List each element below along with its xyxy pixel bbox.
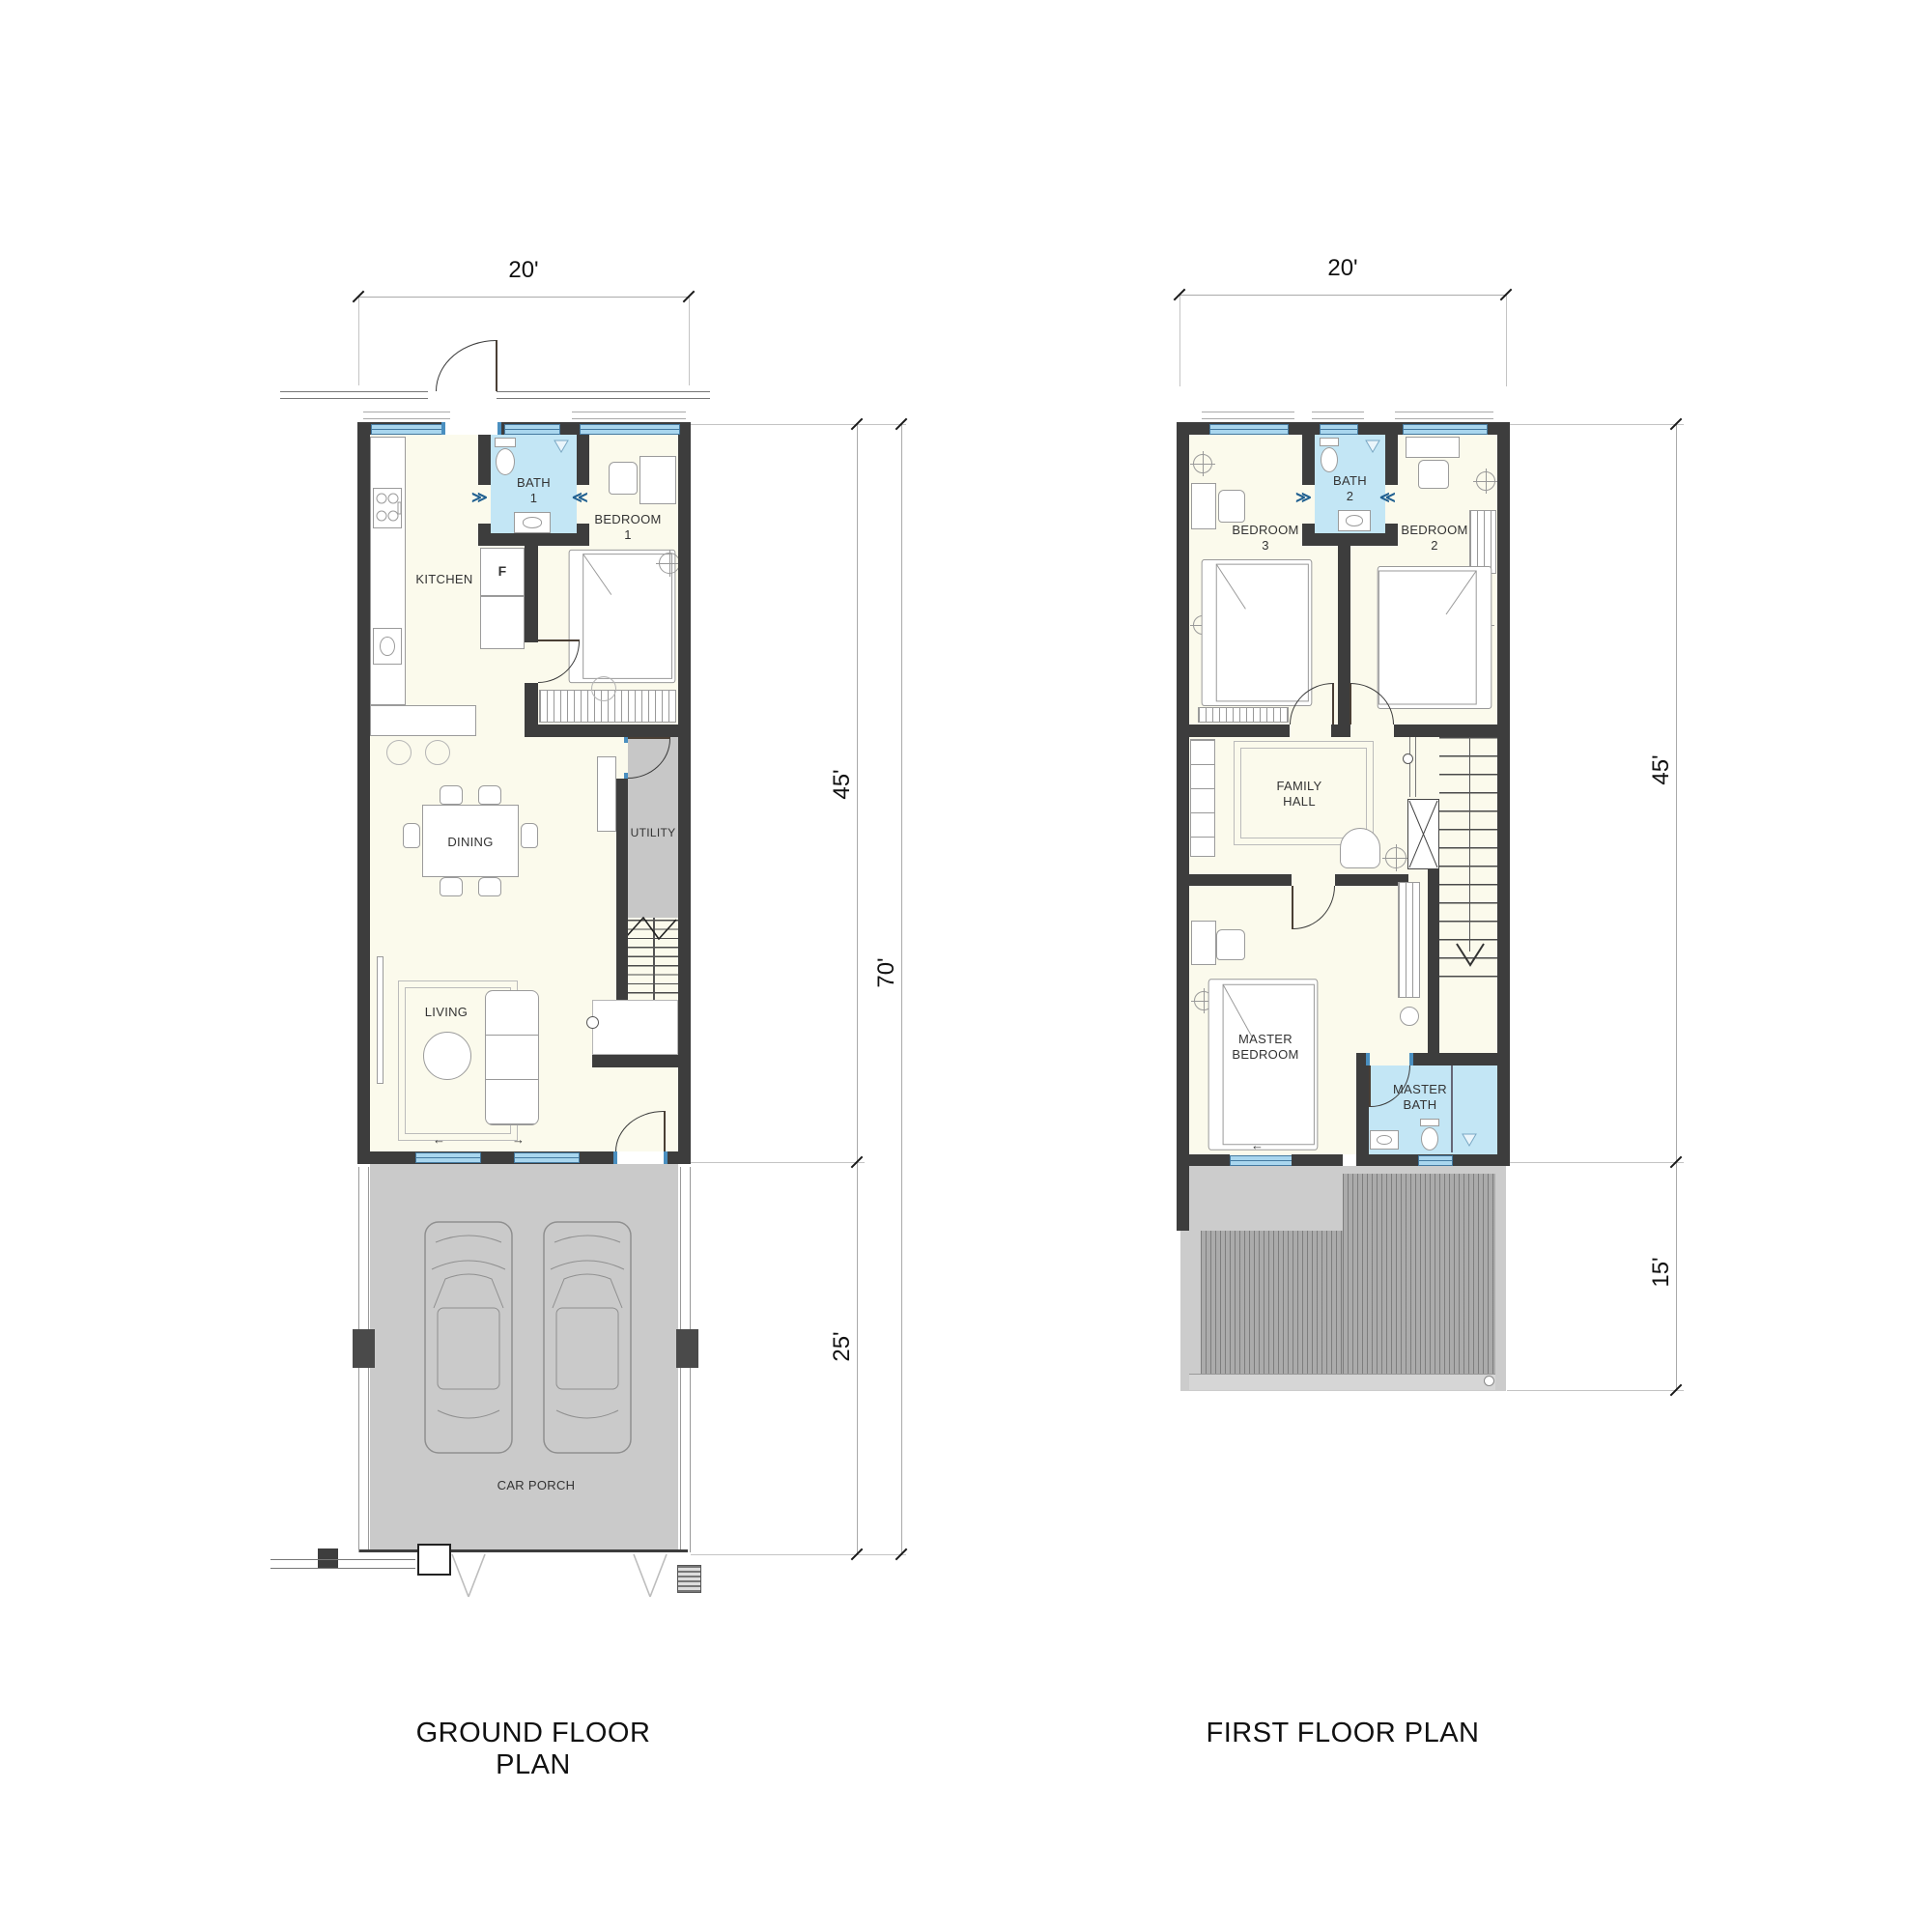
wall-segment (1497, 422, 1510, 1164)
ceiling-fan-icon (1385, 847, 1406, 868)
window (504, 424, 560, 435)
desk (639, 456, 676, 504)
drain-symbol (1484, 1376, 1494, 1386)
drain-grate (677, 1565, 701, 1593)
wall-segment (525, 683, 538, 724)
door-leaf (664, 1111, 666, 1151)
dimension-label-width: 20' (490, 257, 557, 284)
fridge-label: F (480, 563, 525, 581)
sliding-window (514, 1152, 580, 1163)
gate-swing (450, 1552, 487, 1599)
dimension-label-house: 45' (1648, 741, 1675, 799)
car (541, 1219, 634, 1456)
window-sill (1395, 412, 1493, 419)
bed (1377, 565, 1492, 710)
window (1418, 1155, 1453, 1166)
column-symbol (1403, 753, 1413, 764)
door-gap (1369, 1053, 1410, 1065)
wall-segment (1428, 869, 1439, 1053)
master-bath-sink (1370, 1130, 1399, 1150)
bed (1201, 558, 1313, 707)
extension-line (691, 1162, 865, 1163)
room-label-master-bedroom: MASTER BEDROOM (1219, 1032, 1312, 1064)
room-label-car-porch: CAR PORCH (469, 1478, 604, 1493)
door-jamb (1409, 1053, 1413, 1065)
door-jamb (624, 773, 628, 779)
dimension-label-total: 70' (873, 944, 900, 1002)
toilet-bowl (1421, 1127, 1438, 1151)
door-jamb (664, 1151, 668, 1164)
desk-chair (1216, 929, 1245, 960)
wall-segment (1177, 874, 1292, 886)
gate-swing (632, 1552, 668, 1599)
shower-icon (553, 439, 570, 454)
toilet-tank (1320, 438, 1339, 446)
wall-segment (1302, 533, 1398, 546)
bed (1207, 978, 1319, 1151)
door-jamb (497, 422, 501, 435)
room-label-dining: DINING (422, 835, 519, 850)
slide-arrow-icon: ← (1251, 1138, 1264, 1152)
column (676, 1329, 698, 1368)
roof-deck (1201, 1231, 1343, 1374)
dimension-line (901, 424, 902, 1555)
window (371, 424, 444, 435)
window-sill (363, 412, 450, 419)
dimension-line (1179, 295, 1507, 296)
gate-post (417, 1544, 451, 1576)
extension-line (689, 297, 690, 385)
shower-icon (1461, 1132, 1478, 1148)
roof-deck (1343, 1174, 1495, 1374)
dimension-label-width: 20' (1309, 255, 1377, 282)
kitchen-island (370, 705, 476, 736)
fence-line (497, 391, 710, 399)
dimension-line (857, 424, 858, 1555)
dimension-line (1676, 424, 1677, 1391)
desk (1191, 921, 1216, 965)
window-sill (1202, 412, 1294, 419)
desk-chair (609, 462, 638, 495)
dining-chair (521, 823, 538, 848)
extension-line (1510, 1162, 1684, 1163)
stair-break-line (626, 914, 680, 943)
dining-chair (440, 877, 463, 896)
door-jamb (613, 1151, 617, 1164)
wall-segment (678, 422, 691, 1164)
stool (386, 740, 412, 765)
kitchen-counter (370, 437, 406, 705)
stool (591, 676, 616, 701)
wall-segment (1177, 422, 1189, 1231)
kitchen-sink (373, 628, 402, 665)
wall-segment (616, 779, 628, 918)
stove-icon (373, 488, 402, 528)
bath2-sink (1338, 510, 1371, 531)
wall-segment (592, 1055, 691, 1067)
sofa (485, 990, 539, 1125)
fence-line (280, 391, 428, 399)
wall-segment (1356, 1065, 1369, 1154)
coffee-table (423, 1032, 471, 1080)
extension-line (1506, 295, 1507, 386)
door-jamb (1366, 1053, 1370, 1065)
toilet-bowl (496, 448, 515, 475)
dimension-line (358, 297, 690, 298)
room-label-bath1: BATH 1 (478, 475, 589, 507)
shower-icon (1364, 439, 1381, 454)
wall-segment (525, 724, 691, 737)
extension-line (358, 297, 359, 385)
window (1320, 424, 1358, 435)
sliding-window (415, 1152, 481, 1163)
window (580, 424, 680, 435)
fence-line (270, 1559, 415, 1569)
kitchen-cabinet (480, 596, 525, 649)
armchair (1340, 828, 1380, 868)
room-label-master-bath: MASTER BATH (1377, 1082, 1463, 1114)
room-label-bedroom2: BEDROOM 2 (1386, 523, 1483, 554)
door-leaf (496, 340, 497, 391)
toilet-tank (1420, 1119, 1439, 1126)
understair-cabinet (592, 1000, 678, 1055)
stool (425, 740, 450, 765)
storage-box (597, 756, 616, 832)
wall-segment (1177, 724, 1290, 737)
wall-segment (1331, 724, 1350, 737)
tv-console (377, 956, 384, 1084)
window (1403, 424, 1488, 435)
desk (1406, 437, 1460, 458)
sliding-window (1230, 1155, 1293, 1166)
extension-line (1507, 1390, 1684, 1391)
floor-plan-sheet: 20' KITCHEN ≫ ≪ BATH 1 F BEDROOM 1 (0, 0, 1932, 1932)
extension-line (691, 1554, 906, 1555)
extension-line (1510, 424, 1684, 425)
window-sill (572, 412, 686, 419)
wardrobe (1398, 882, 1420, 998)
extension-line (691, 424, 906, 425)
wall-segment (478, 533, 589, 546)
room-label-living: LIVING (408, 1005, 485, 1020)
room-label-kitchen: KITCHEN (396, 572, 493, 587)
dining-chair (440, 785, 463, 805)
wall-segment (525, 546, 538, 642)
column-symbol (586, 1016, 599, 1029)
window (1209, 424, 1289, 435)
window-gap (444, 422, 498, 435)
first-floor-title: FIRST FLOOR PLAN (1188, 1718, 1497, 1749)
desk (1191, 483, 1216, 529)
stair-rail (1415, 737, 1416, 797)
window-sill (1312, 412, 1364, 419)
dining-chair (478, 785, 501, 805)
toilet-tank (495, 438, 516, 447)
shaft-x-icon (1407, 799, 1439, 869)
room-label-family-hall: FAMILY HALL (1251, 779, 1348, 810)
stair-center-line (1469, 737, 1470, 952)
ceiling-fan-icon (1476, 471, 1495, 491)
stool (1400, 1007, 1419, 1026)
door-jamb (441, 422, 445, 435)
wall-segment (616, 918, 628, 1000)
door-gap (616, 1151, 665, 1164)
bath1-sink (514, 512, 551, 533)
extension-line (1179, 295, 1180, 386)
stair-rail (1409, 737, 1410, 797)
room-label-bedroom3: BEDROOM 3 (1217, 523, 1314, 554)
column (353, 1329, 375, 1368)
desk-chair (1418, 460, 1449, 489)
dimension-label-deck: 15' (1648, 1243, 1675, 1301)
ground-floor-title: GROUND FLOOR PLAN (379, 1718, 688, 1781)
bookshelf (1190, 739, 1215, 857)
desk-chair (1218, 490, 1245, 523)
wall-segment (357, 422, 370, 1164)
car (422, 1219, 515, 1456)
dimension-label-house: 45' (829, 755, 856, 813)
slide-arrow-icon: → (512, 1132, 525, 1147)
toilet-bowl (1321, 447, 1338, 472)
door-arc (436, 340, 497, 391)
room-label-utility: UTILITY (626, 826, 680, 840)
dimension-label-porch: 25' (829, 1318, 856, 1376)
stair-down-arrow (1455, 942, 1486, 967)
door-jamb (624, 737, 628, 743)
wall-segment (1394, 724, 1510, 737)
room-label-bath2: BATH 2 (1302, 473, 1398, 505)
deck-edge-band (1189, 1374, 1495, 1390)
slide-arrow-icon: ← (433, 1132, 445, 1147)
dining-chair (478, 877, 501, 896)
dining-chair (403, 823, 420, 848)
ceiling-fan-icon (1193, 454, 1212, 473)
ceiling-fan-icon (659, 553, 680, 574)
dresser (1198, 707, 1289, 723)
room-label-bedroom1: BEDROOM 1 (580, 512, 676, 544)
